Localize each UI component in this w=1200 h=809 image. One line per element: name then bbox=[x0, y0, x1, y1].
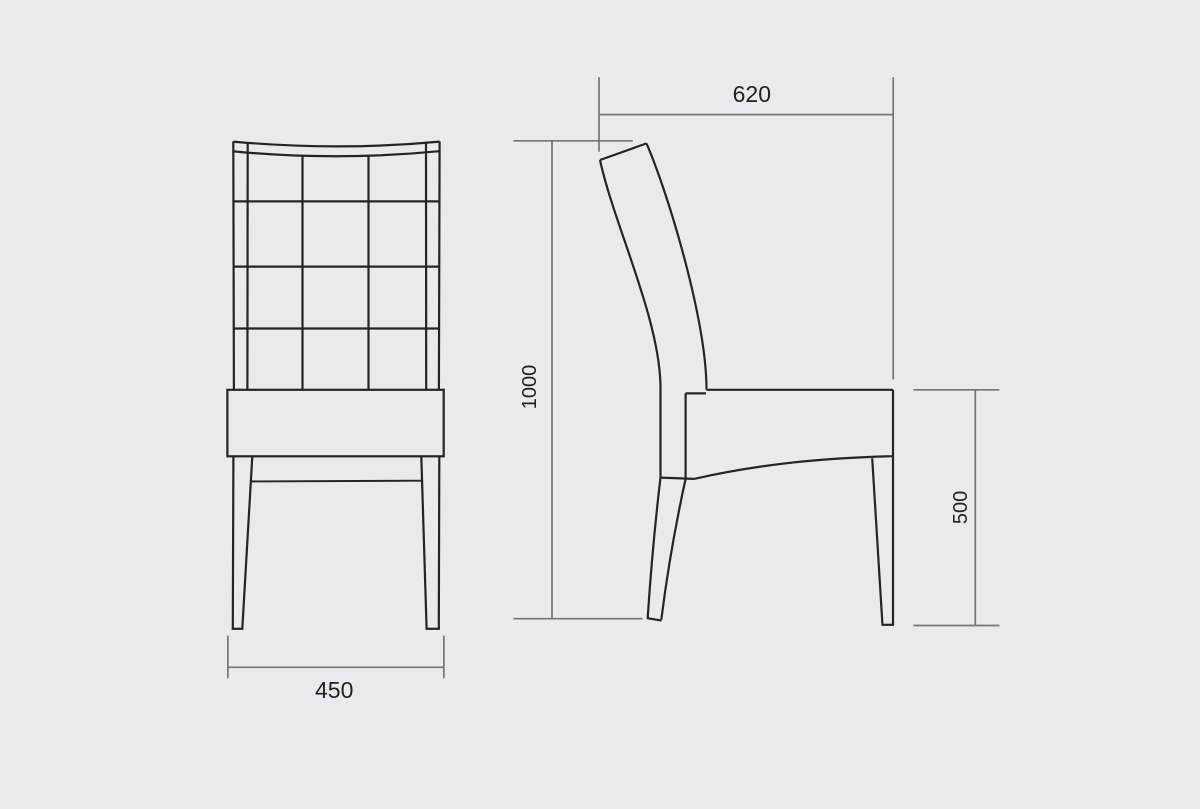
svg-text:500: 500 bbox=[950, 491, 972, 524]
svg-text:450: 450 bbox=[315, 677, 353, 703]
svg-text:620: 620 bbox=[733, 81, 771, 107]
svg-text:1000: 1000 bbox=[519, 365, 541, 410]
